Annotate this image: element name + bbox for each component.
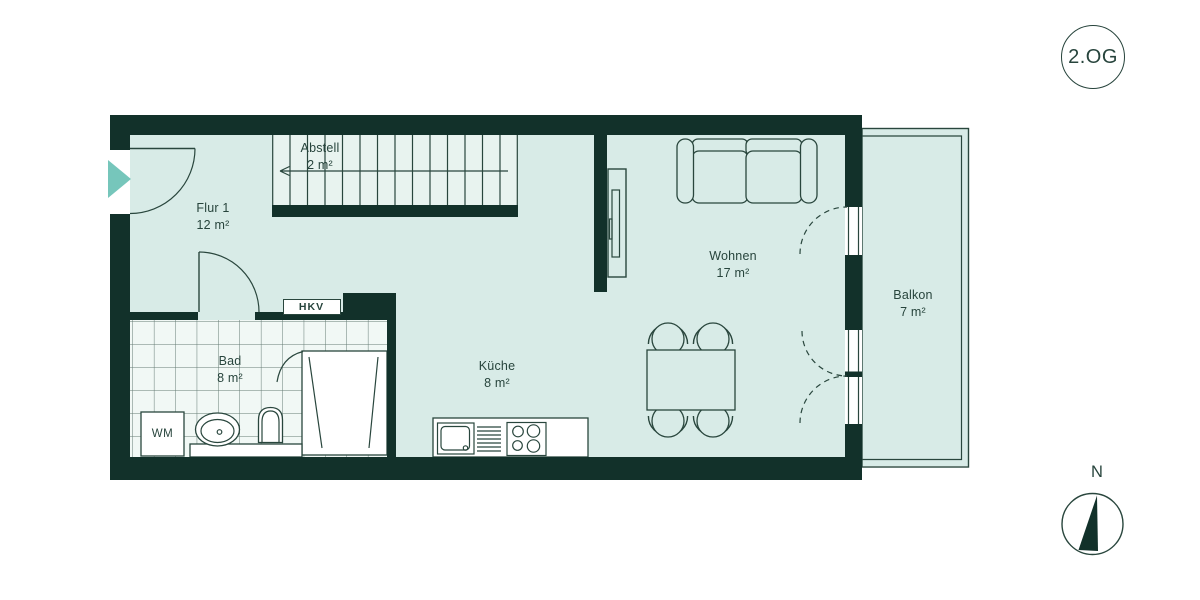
room-label-abstell: Abstell 2 m² bbox=[301, 140, 340, 173]
compass bbox=[1062, 494, 1123, 555]
north-needle-icon bbox=[1079, 496, 1099, 552]
room-name: Abstell bbox=[301, 140, 340, 157]
compass-north-label: N bbox=[1082, 463, 1112, 482]
room-name: Küche bbox=[479, 358, 515, 375]
floor-plan-page: Flur 1 12 m² Abstell 2 m² Bad 8 m² Küche… bbox=[0, 0, 1200, 600]
room-area: 12 m² bbox=[196, 217, 229, 234]
room-label-kueche: Küche 8 m² bbox=[479, 358, 515, 391]
room-label-wohnen: Wohnen 17 m² bbox=[709, 248, 757, 281]
room-name: Bad bbox=[217, 353, 243, 370]
room-label-balkon: Balkon 7 m² bbox=[893, 287, 932, 320]
kitchen-counter bbox=[433, 418, 588, 457]
room-area: 2 m² bbox=[301, 157, 340, 174]
room-name: Wohnen bbox=[709, 248, 757, 265]
washing-machine-label: WM bbox=[141, 412, 184, 456]
bathroom-sink bbox=[196, 413, 240, 446]
toilet bbox=[259, 408, 283, 443]
room-area: 17 m² bbox=[709, 265, 757, 282]
dining-table bbox=[647, 350, 735, 410]
room-label-bad: Bad 8 m² bbox=[217, 353, 243, 386]
room-name: Balkon bbox=[893, 287, 932, 304]
room-name: Flur 1 bbox=[196, 200, 229, 217]
room-area: 8 m² bbox=[479, 375, 515, 392]
hkv-tag: HKV bbox=[283, 299, 341, 315]
room-area: 8 m² bbox=[217, 370, 243, 387]
floor-badge: 2.OG bbox=[1061, 25, 1125, 89]
sofa bbox=[677, 139, 817, 203]
drainer-lines bbox=[477, 427, 501, 451]
floor-plan-drawing bbox=[0, 0, 1200, 600]
room-label-flur: Flur 1 12 m² bbox=[196, 200, 229, 233]
room-area: 7 m² bbox=[893, 304, 932, 321]
vanity-counter bbox=[190, 444, 302, 457]
